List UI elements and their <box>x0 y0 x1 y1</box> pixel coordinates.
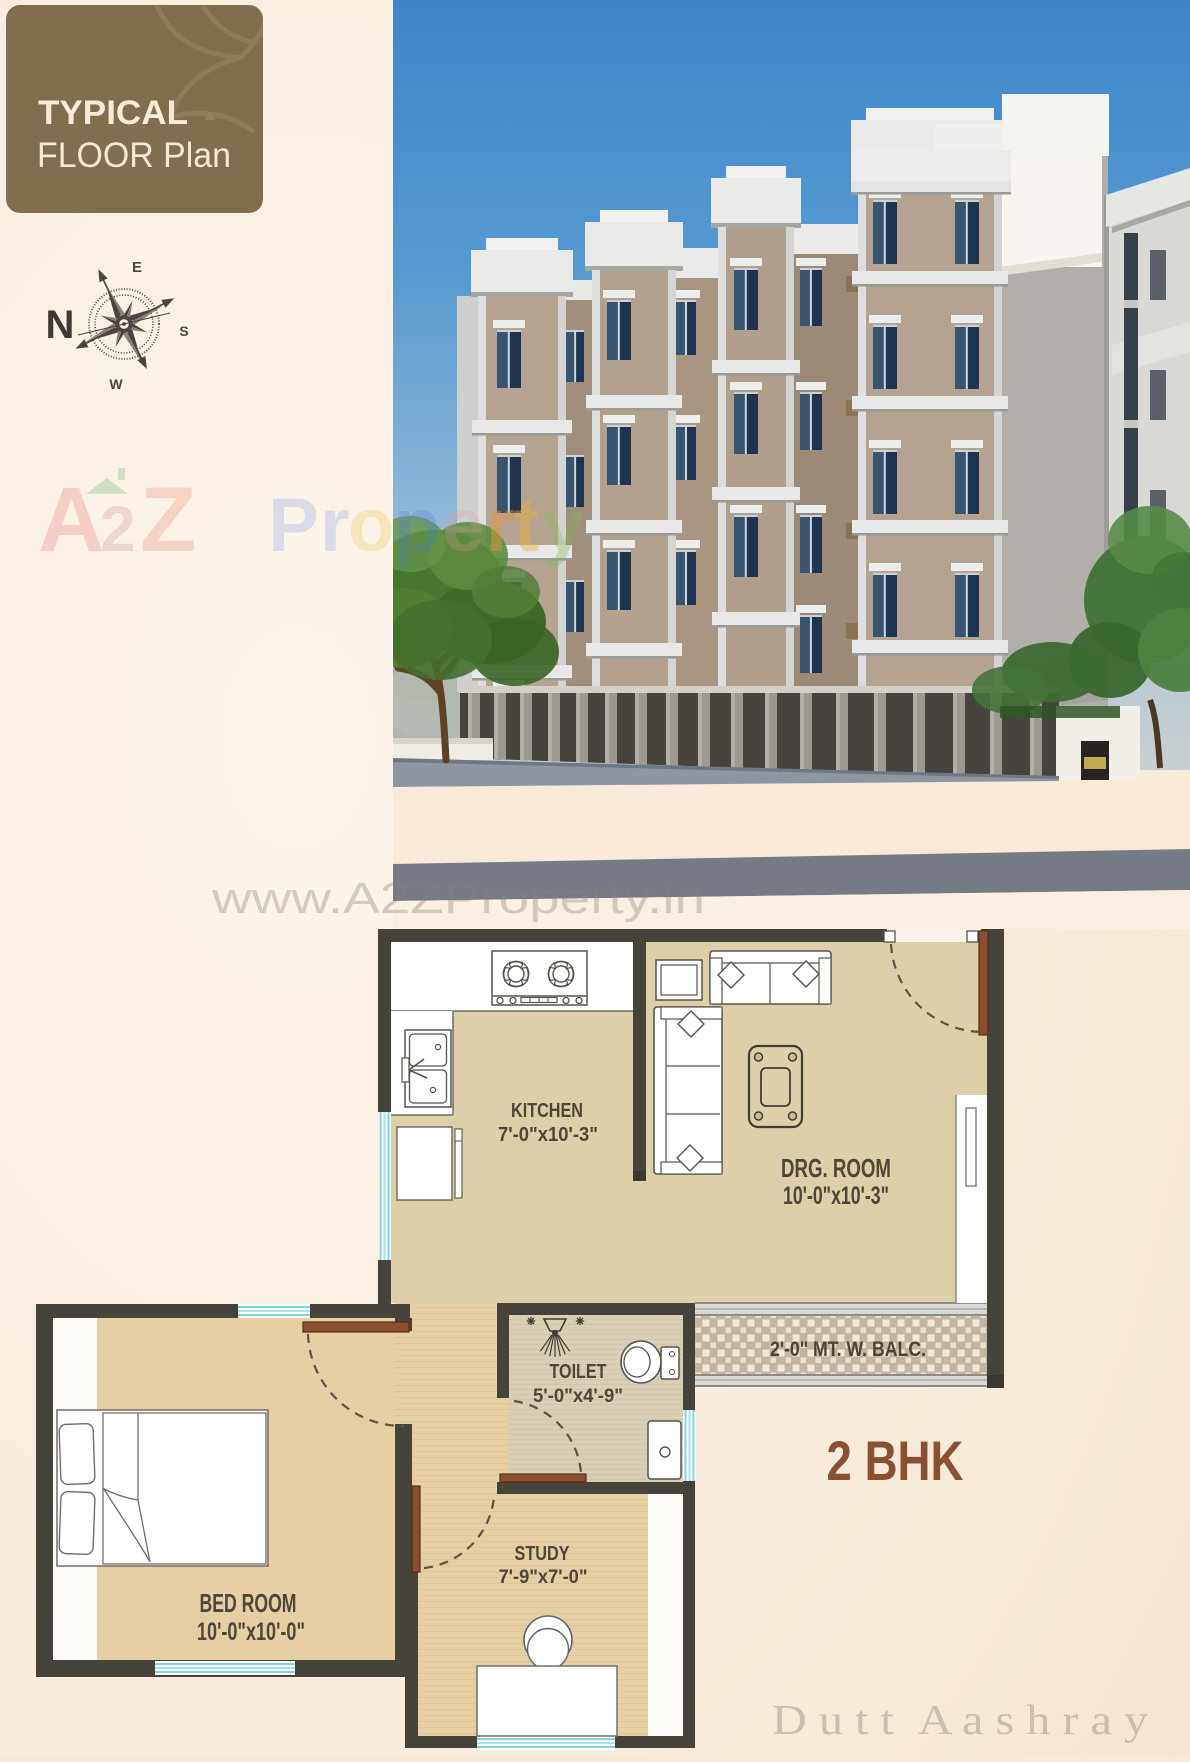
svg-text:r: r <box>486 483 516 568</box>
svg-text:5'-0"x4'-9": 5'-0"x4'-9" <box>533 1386 623 1407</box>
svg-text:10'-0"x10'-3": 10'-0"x10'-3" <box>783 1182 889 1210</box>
svg-text:t: t <box>514 483 539 568</box>
svg-text:DRG. ROOM: DRG. ROOM <box>781 1153 891 1183</box>
svg-text:KITCHEN: KITCHEN <box>511 1100 583 1122</box>
svg-text:W: W <box>109 376 123 392</box>
svg-text:2: 2 <box>100 493 136 565</box>
svg-text:N: N <box>46 303 75 347</box>
svg-text:E: E <box>132 259 142 276</box>
svg-text:D u t t A a s h r a y: D u t t A a s h r a y <box>772 1698 1148 1744</box>
svg-text:r: r <box>320 483 350 568</box>
svg-text:TYPICAL: TYPICAL <box>38 94 188 132</box>
svg-text:www.A2ZProperty.in: www.A2ZProperty.in <box>211 874 705 923</box>
svg-text:Z: Z <box>140 469 196 571</box>
svg-text:TOILET: TOILET <box>550 1361 607 1383</box>
svg-text:BED ROOM: BED ROOM <box>200 1588 297 1618</box>
svg-text:A: A <box>38 469 104 571</box>
svg-text:STUDY: STUDY <box>515 1543 571 1565</box>
svg-text:2 BHK: 2 BHK <box>827 1429 964 1492</box>
svg-text:e: e <box>442 483 484 568</box>
svg-text:o: o <box>348 483 394 568</box>
svg-text:10'-0"x10'-0": 10'-0"x10'-0" <box>197 1618 305 1646</box>
svg-text:7'-9"x7'-0": 7'-9"x7'-0" <box>499 1567 588 1588</box>
svg-text:2'-0" MT. W. BALC.: 2'-0" MT. W. BALC. <box>770 1338 926 1361</box>
svg-text:y: y <box>542 483 584 568</box>
svg-text:7'-0"x10'-3": 7'-0"x10'-3" <box>498 1124 598 1146</box>
svg-text:S: S <box>179 323 188 339</box>
svg-text:P: P <box>268 483 319 568</box>
svg-text:p: p <box>394 483 440 568</box>
svg-text:FLOOR Plan: FLOOR Plan <box>37 136 231 175</box>
